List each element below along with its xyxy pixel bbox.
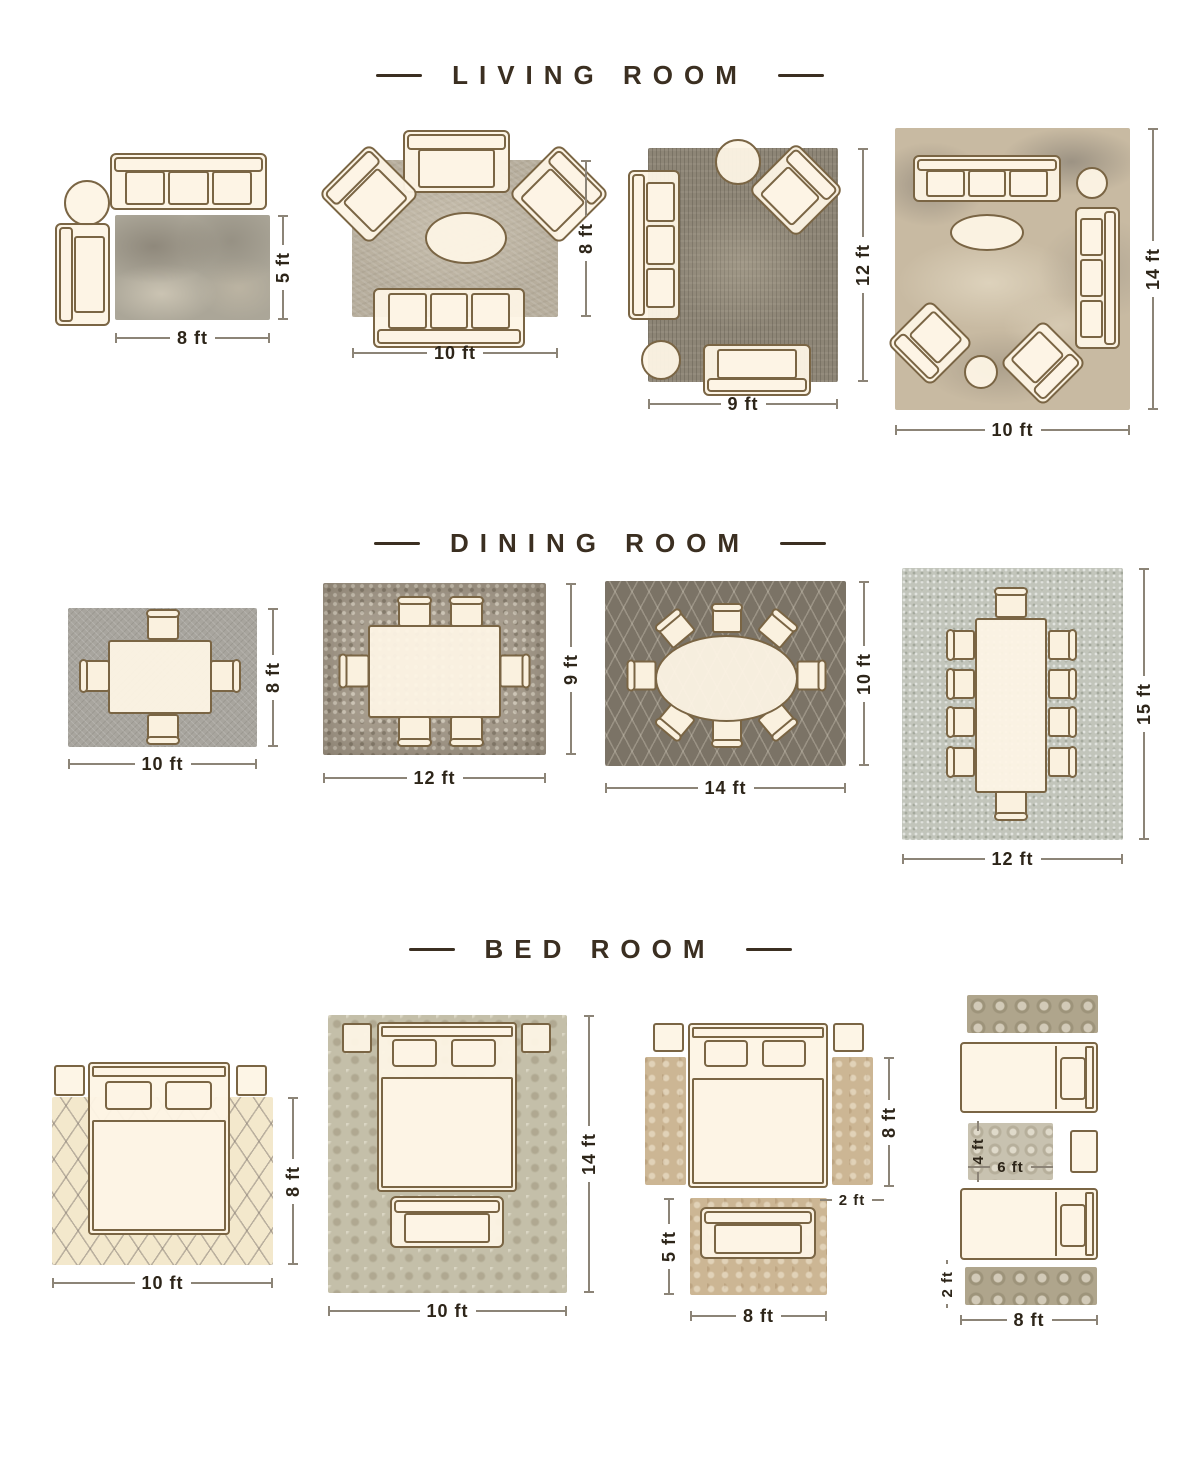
dim-line — [897, 429, 985, 431]
dim-tick — [288, 1263, 298, 1265]
dining-chair — [82, 660, 110, 692]
seat-cushion — [471, 293, 510, 329]
dim-line — [215, 337, 268, 339]
nightstand — [521, 1023, 551, 1053]
dim-line — [872, 1199, 884, 1201]
dim-label: 8 ft — [736, 1306, 781, 1327]
section-title-text: BED ROOM — [485, 934, 716, 965]
dining-chair — [797, 661, 824, 691]
pillow — [762, 1040, 806, 1067]
dim-label: 9 ft — [721, 394, 766, 415]
dining-chair — [1048, 669, 1074, 699]
dining-chair — [712, 606, 742, 633]
dining-table-oval — [655, 635, 798, 722]
loveseat — [403, 130, 510, 193]
sofa-cushions — [926, 170, 1048, 197]
dim-line — [476, 1310, 566, 1312]
dim-label: 8 ft — [879, 1100, 900, 1145]
sofa-backrest — [1104, 211, 1116, 345]
pillow — [105, 1081, 152, 1110]
width-dimension: 10 ft — [895, 418, 1130, 442]
nightstand — [833, 1023, 864, 1052]
dim-label: 8 ft — [170, 328, 215, 349]
sofa-cushions — [388, 293, 510, 329]
dim-label: 15 ft — [1134, 676, 1155, 732]
dim-label: 9 ft — [561, 647, 582, 692]
height-dimension: 8 ft — [281, 1097, 305, 1265]
bed — [688, 1023, 828, 1188]
dim-line — [191, 763, 256, 765]
runner-width-dimension: 2 ft — [820, 1188, 884, 1212]
seat-cushion — [926, 170, 965, 197]
bed-divider — [1055, 1046, 1057, 1109]
coffee-table — [950, 214, 1024, 251]
dim-line — [888, 1059, 890, 1100]
pillow — [451, 1039, 496, 1067]
bed — [377, 1022, 517, 1192]
dining-table — [108, 640, 212, 714]
sofa-backrest — [407, 134, 506, 150]
dining-chair — [1048, 707, 1074, 737]
dim-line — [191, 1282, 272, 1284]
dim-line — [1143, 732, 1145, 838]
dim-label: 12 ft — [985, 849, 1041, 870]
dim-label: 5 ft — [273, 245, 294, 290]
dim-line — [904, 858, 985, 860]
sofa-cushions — [714, 1224, 802, 1254]
dim-tick — [836, 399, 838, 409]
dim-tick — [844, 783, 846, 793]
dining-chair — [500, 655, 528, 688]
dim-label: 10 ft — [854, 646, 875, 702]
dim-line — [781, 1315, 825, 1317]
seat-cushion — [212, 171, 252, 205]
bed-blanket — [92, 1120, 226, 1231]
dim-line — [292, 1204, 294, 1264]
dim-line — [588, 1017, 590, 1126]
width-dimension: 14 ft — [605, 776, 846, 800]
height-dimension: 9 ft — [559, 583, 583, 755]
side-table — [1076, 167, 1108, 199]
nightstand — [54, 1065, 85, 1096]
headboard — [1085, 1192, 1094, 1256]
seat-cushion — [430, 293, 469, 329]
dim-line — [1152, 130, 1154, 241]
dim-line — [354, 352, 427, 354]
dim-line — [54, 1282, 135, 1284]
seat-cushion — [1009, 170, 1048, 197]
dim-line — [754, 787, 845, 789]
section-title-dining: DINING ROOM — [0, 528, 1200, 559]
dim-line — [820, 1199, 832, 1201]
dim-tick — [566, 753, 576, 755]
dim-label: 10 ft — [135, 754, 191, 775]
sofa-backrest — [59, 227, 73, 322]
sofa — [1075, 207, 1120, 349]
dim-label: 14 ft — [1143, 241, 1164, 297]
sofa-cushions — [125, 171, 252, 205]
dim-line — [668, 1200, 670, 1224]
title-dash — [778, 74, 824, 77]
section-title-text: LIVING ROOM — [452, 60, 748, 91]
sofa-cushions — [1080, 218, 1103, 338]
twin-bed — [960, 1188, 1098, 1260]
dim-tick — [278, 318, 288, 320]
twin-bed — [960, 1042, 1098, 1113]
seat-cushion — [74, 236, 105, 313]
sofa — [110, 153, 267, 210]
sofa-backrest — [632, 174, 645, 316]
sofa-cushions — [418, 149, 495, 188]
width-dimension: 10 ft — [328, 1299, 567, 1323]
dim-label: 14 ft — [579, 1126, 600, 1182]
bench — [390, 1196, 504, 1248]
dim-line — [117, 337, 170, 339]
dim-line — [862, 293, 864, 380]
headboard — [692, 1027, 824, 1038]
dim-line — [888, 1145, 890, 1186]
dining-chair — [949, 707, 975, 737]
sofa-cushions — [74, 236, 105, 313]
dining-chair — [1048, 747, 1074, 777]
dim-label: 14 ft — [698, 778, 754, 799]
dim-line — [862, 150, 864, 237]
nightstand — [236, 1065, 267, 1096]
seat-cushion — [1080, 218, 1103, 256]
dining-chair — [210, 660, 238, 692]
loveseat — [703, 344, 811, 396]
sofa-backrest — [704, 1211, 812, 1224]
width-dimension: 10 ft — [52, 1271, 273, 1295]
dim-tick — [664, 1293, 674, 1295]
title-dash — [376, 74, 422, 77]
width-dimension: 12 ft — [323, 766, 546, 790]
sofa — [373, 288, 525, 348]
headboard — [1085, 1046, 1094, 1109]
title-dash — [374, 542, 420, 545]
pillow — [392, 1039, 437, 1067]
dim-line — [272, 610, 274, 655]
dim-tick — [565, 1306, 567, 1316]
dining-chair — [342, 655, 370, 688]
dim-tick — [255, 759, 257, 769]
nightstand — [342, 1023, 372, 1053]
dim-label: 12 ft — [407, 768, 463, 789]
center-rug-width-dimension: 6 ft — [968, 1155, 1053, 1179]
dim-label: 2 ft — [832, 1192, 873, 1209]
dining-chair — [147, 714, 179, 742]
height-dimension: 10 ft — [852, 581, 876, 766]
seat-cushion — [717, 349, 797, 379]
seat-cushion — [968, 170, 1007, 197]
bed-divider — [1055, 1192, 1057, 1256]
dim-line — [70, 763, 135, 765]
dim-tick — [859, 764, 869, 766]
bed-blanket — [381, 1077, 513, 1188]
dim-line — [668, 1269, 670, 1293]
dim-label: 5 ft — [659, 1224, 680, 1269]
dim-line — [1052, 1319, 1097, 1321]
section-title-living: LIVING ROOM — [0, 60, 1200, 91]
dim-line — [863, 583, 865, 646]
dim-tick — [268, 333, 270, 343]
dining-table — [975, 618, 1047, 793]
section-title-bed: BED ROOM — [0, 934, 1200, 965]
dim-label: 8 ft — [576, 216, 597, 261]
seat-cushion — [646, 225, 675, 265]
dim-tick — [544, 773, 546, 783]
seat-cushion — [646, 182, 675, 222]
seat-cushion — [418, 149, 495, 188]
dim-line — [1152, 297, 1154, 408]
height-dimension: 5 ft — [271, 215, 295, 320]
height-dimension: 14 ft — [1141, 128, 1165, 410]
sofa-cushions — [646, 182, 675, 308]
dim-line — [585, 162, 587, 216]
dining-chair — [949, 630, 975, 660]
width-dimension: 8 ft — [115, 326, 270, 350]
dim-tick — [556, 348, 558, 358]
width-dimension: 8 ft — [960, 1308, 1098, 1332]
dim-tick — [268, 745, 278, 747]
dim-line — [650, 403, 721, 405]
dim-line — [968, 1166, 990, 1168]
dim-line — [570, 585, 572, 647]
pillow — [165, 1081, 212, 1110]
bed — [88, 1062, 230, 1235]
dining-chair — [949, 669, 975, 699]
dim-line — [1041, 858, 1122, 860]
side-table — [964, 355, 998, 389]
dim-line — [585, 261, 587, 315]
dining-chair — [398, 716, 431, 744]
bed-blanket — [692, 1078, 824, 1184]
dim-label: 8 ft — [283, 1159, 304, 1204]
sofa-backrest — [707, 378, 807, 392]
headboard — [92, 1066, 226, 1077]
dining-chair — [630, 661, 657, 691]
section-title-text: DINING ROOM — [450, 528, 750, 559]
dim-tick — [1139, 838, 1149, 840]
dining-chair — [995, 790, 1027, 818]
coffee-table — [425, 212, 507, 264]
dim-tick — [1121, 854, 1123, 864]
dim-tick — [584, 1291, 594, 1293]
dim-line — [463, 777, 545, 779]
dim-line — [863, 702, 865, 765]
dim-line — [325, 777, 407, 779]
sofa — [628, 170, 680, 320]
dim-line — [1041, 429, 1129, 431]
dim-line — [483, 352, 556, 354]
seat-cushion — [125, 171, 165, 205]
title-dash — [780, 542, 826, 545]
dim-line — [570, 692, 572, 754]
dim-label: 6 ft — [990, 1159, 1031, 1176]
dim-line — [588, 1182, 590, 1291]
dim-line — [1031, 1166, 1053, 1168]
dim-line — [282, 217, 284, 245]
width-dimension: 8 ft — [690, 1304, 827, 1328]
height-dimension: 15 ft — [1132, 568, 1156, 840]
dining-chair — [949, 747, 975, 777]
dining-chair — [450, 599, 483, 627]
dim-label: 10 ft — [420, 1301, 476, 1322]
height-dimension: 12 ft — [851, 148, 875, 382]
dim-line — [1143, 570, 1145, 676]
runner-rug — [832, 1057, 873, 1185]
dim-tick — [1148, 408, 1158, 410]
width-dimension: 12 ft — [902, 847, 1123, 871]
rug-size-guide: LIVING ROOM 5 ft 8 ft 8 — [0, 0, 1200, 1467]
runner-height-dimension: 8 ft — [877, 1057, 901, 1187]
dim-label: 10 ft — [135, 1273, 191, 1294]
dim-line — [330, 1310, 420, 1312]
side-table — [641, 340, 681, 380]
side-table — [715, 139, 761, 185]
runner-rug — [967, 995, 1098, 1033]
width-dimension: 9 ft — [648, 392, 838, 416]
side-table — [64, 180, 110, 226]
dim-line — [282, 290, 284, 318]
dim-line — [692, 1315, 736, 1317]
dim-line — [766, 403, 837, 405]
dim-label: 8 ft — [1007, 1310, 1052, 1331]
dining-chair — [995, 590, 1027, 618]
dim-line — [962, 1319, 1007, 1321]
dim-line — [977, 1121, 979, 1131]
dim-line — [292, 1099, 294, 1159]
living-rug-8x5 — [115, 215, 270, 320]
dim-line — [607, 787, 698, 789]
height-dimension: 8 ft — [261, 608, 285, 747]
seat-cushion — [646, 268, 675, 308]
runner-rug — [965, 1267, 1097, 1305]
seat-cushion — [1080, 259, 1103, 297]
nightstand — [1070, 1130, 1098, 1173]
dim-tick — [858, 380, 868, 382]
dining-chair — [398, 599, 431, 627]
seat-cushion — [388, 293, 427, 329]
seat-cushion — [714, 1224, 802, 1254]
dim-line — [946, 1304, 948, 1308]
dim-line — [272, 700, 274, 745]
dining-chair — [1048, 630, 1074, 660]
dim-tick — [271, 1278, 273, 1288]
width-dimension: 10 ft — [68, 752, 257, 776]
front-rug-height-dimension: 5 ft — [657, 1198, 681, 1295]
dining-table — [368, 625, 501, 718]
seat-cushion — [404, 1213, 490, 1243]
title-dash — [746, 948, 792, 951]
dim-label: 8 ft — [263, 655, 284, 700]
dining-chair — [712, 718, 742, 745]
dim-tick — [884, 1185, 894, 1187]
seat-cushion — [1080, 300, 1103, 338]
loveseat — [55, 223, 110, 326]
dim-label: 10 ft — [427, 343, 483, 364]
pillow — [1060, 1057, 1086, 1100]
dim-tick — [1128, 425, 1130, 435]
loveseat — [700, 1207, 816, 1259]
runner-height-dimension: 2 ft — [935, 1260, 959, 1308]
title-dash — [409, 948, 455, 951]
headboard — [381, 1026, 513, 1037]
bench-backrest — [394, 1200, 500, 1213]
sofa-cushions — [717, 349, 797, 379]
dim-tick — [1096, 1315, 1098, 1325]
dim-tick — [825, 1311, 827, 1321]
sofa — [913, 155, 1061, 202]
dining-chair — [147, 612, 179, 640]
pillow — [1060, 1204, 1086, 1247]
dining-chair — [450, 716, 483, 744]
dim-label: 12 ft — [853, 237, 874, 293]
bench-cushions — [404, 1213, 490, 1243]
seat-cushion — [168, 171, 208, 205]
dim-label: 2 ft — [939, 1264, 956, 1305]
pillow — [704, 1040, 748, 1067]
height-dimension: 8 ft — [574, 160, 598, 317]
runner-rug — [645, 1057, 686, 1185]
width-dimension: 10 ft — [352, 341, 558, 365]
dim-tick — [581, 315, 591, 317]
dim-label: 10 ft — [985, 420, 1041, 441]
sofa-backrest — [114, 157, 263, 172]
nightstand — [653, 1023, 684, 1052]
height-dimension: 14 ft — [577, 1015, 601, 1293]
